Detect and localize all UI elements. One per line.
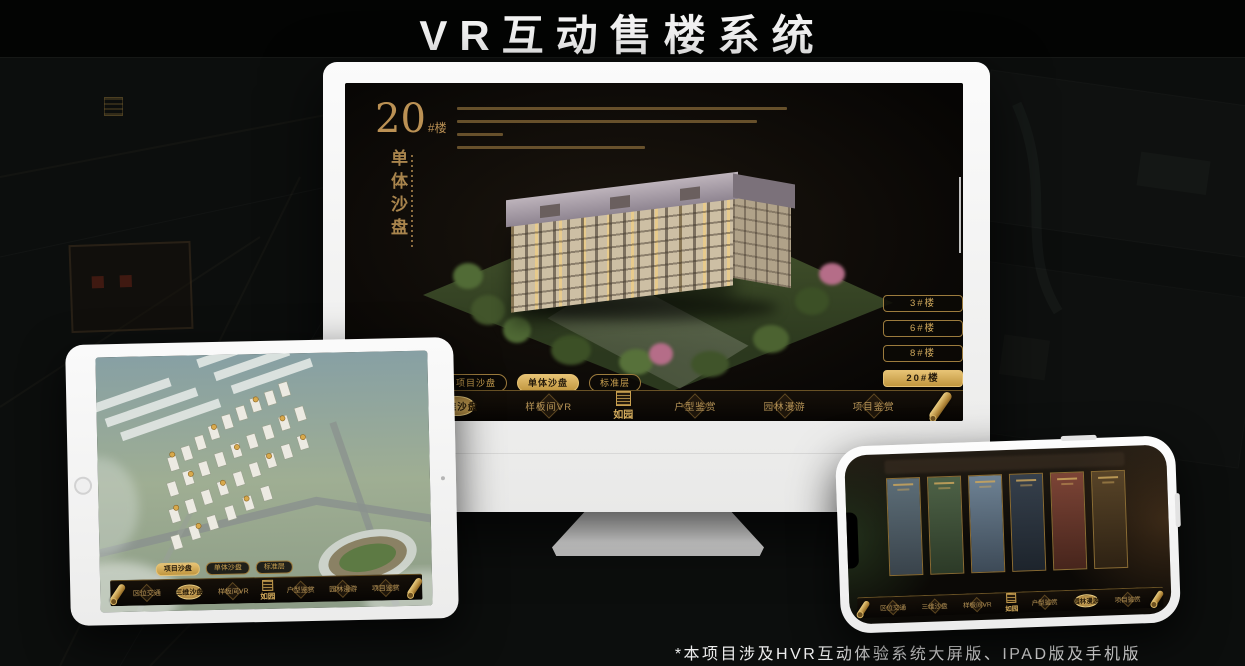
phone-device: 区位交通 三维沙盘 样板间VR 如园 户型鉴赏 园林漫游 项目鉴赏: [835, 435, 1181, 634]
flower-decoration: [819, 263, 845, 285]
tree-decoration: [753, 325, 789, 353]
tablet-camera-icon: [441, 476, 445, 480]
background-seal-decoration: [104, 97, 123, 116]
description-text-lines: [457, 107, 787, 159]
nav-item-floorplans[interactable]: 户型鉴赏: [1029, 591, 1060, 612]
phone-side-button: [1061, 435, 1097, 441]
nav-item-model-room-vr[interactable]: 样板间VR: [519, 391, 578, 421]
tree-decoration: [795, 287, 829, 315]
tree-decoration: [453, 263, 483, 289]
promo-poster: VR互动售楼系统 20#楼 单体沙盘: [0, 0, 1245, 666]
monitor-stand-base: [552, 508, 764, 556]
building-3d-model[interactable]: [423, 167, 893, 395]
nav-item-3d-sandtable[interactable]: 三维沙盘: [172, 579, 207, 605]
tablet-screen: 项目沙盘 单体沙盘 标准层 区位交通 三维沙盘 样板间VR 如园 户型鉴赏 园林…: [95, 351, 432, 613]
brand-logo: 如园: [1005, 593, 1019, 613]
tablet-home-button: [74, 476, 92, 494]
brand-seal-icon: [1006, 593, 1016, 603]
scroll-icon[interactable]: [1150, 589, 1164, 607]
brand-seal-icon: [262, 579, 273, 590]
scroll-icon[interactable]: [928, 390, 954, 421]
screen-scrollbar[interactable]: [959, 177, 961, 253]
phone-screen: 区位交通 三维沙盘 样板间VR 如园 户型鉴赏 园林漫游 项目鉴赏: [844, 444, 1172, 624]
building-button-8[interactable]: 8#楼: [883, 345, 963, 362]
nav-item-garden-roam[interactable]: 园林漫游: [1071, 590, 1102, 611]
scroll-icon[interactable]: [856, 599, 870, 617]
block-number: 20: [375, 96, 426, 142]
tab-single-sandtable[interactable]: 单体沙盘: [206, 561, 250, 575]
building-selector: 3#楼 6#楼 8#楼 20#楼: [883, 295, 963, 395]
brand-seal-icon: [616, 391, 631, 406]
scroll-icon[interactable]: [109, 583, 126, 604]
block-subtitle-en-decoration: [411, 155, 413, 247]
nav-item-location[interactable]: 区位交通: [878, 597, 909, 618]
tree-decoration: [471, 295, 505, 325]
tablet-device: 项目沙盘 单体沙盘 标准层 区位交通 三维沙盘 样板间VR 如园 户型鉴赏 园林…: [65, 337, 459, 626]
phone-side-button: [1175, 493, 1181, 527]
building-button-6[interactable]: 6#楼: [883, 320, 963, 337]
tree-decoration: [619, 349, 653, 375]
nav-item-floorplans[interactable]: 户型鉴赏: [283, 577, 318, 603]
nav-item-garden-roam[interactable]: 园林漫游: [758, 391, 812, 421]
page-title: VR互动售楼系统: [0, 2, 1245, 63]
tab-project-sandtable[interactable]: 项目沙盘: [156, 562, 200, 576]
tree-decoration: [691, 351, 729, 377]
brand-logo: 如园: [260, 579, 275, 601]
background-plaque-decoration: [69, 241, 194, 333]
block-subtitle-vertical: 单体沙盘: [385, 149, 410, 241]
gallery-panel[interactable]: [1050, 471, 1087, 570]
nav-item-location[interactable]: 区位交通: [130, 580, 165, 606]
block-heading: 20#楼: [375, 99, 447, 139]
block-suffix: #楼: [428, 121, 447, 135]
building-button-20[interactable]: 20#楼: [883, 370, 963, 387]
nav-item-project-gallery[interactable]: 项目鉴赏: [847, 391, 901, 421]
tree-decoration: [551, 335, 591, 365]
nav-item-model-room-vr[interactable]: 样板间VR: [961, 594, 994, 615]
gallery-panel[interactable]: [968, 474, 1005, 573]
nav-item-garden-roam[interactable]: 园林漫游: [326, 576, 361, 602]
scroll-panel-gallery: [886, 470, 1128, 576]
tab-standard-floor[interactable]: 标准层: [256, 560, 293, 574]
flower-decoration: [649, 343, 673, 365]
phone-notch: [846, 512, 859, 568]
footnote-text: *本项目涉及HVR互动体验系统大屏版、IPAD版及手机版: [675, 640, 1141, 664]
gallery-panel[interactable]: [1009, 473, 1046, 572]
tree-decoration: [503, 317, 531, 343]
building-button-3[interactable]: 3#楼: [883, 295, 963, 312]
nav-item-project-gallery[interactable]: 项目鉴赏: [368, 575, 403, 601]
brand-logo: 如园: [613, 391, 633, 421]
nav-item-project-gallery[interactable]: 项目鉴赏: [1112, 588, 1143, 609]
nav-item-floorplans[interactable]: 户型鉴赏: [668, 391, 722, 421]
gallery-panel[interactable]: [886, 477, 923, 576]
gallery-panel[interactable]: [1091, 470, 1128, 569]
nav-item-3d-sandtable[interactable]: 三维沙盘: [919, 595, 950, 616]
gallery-panel[interactable]: [927, 476, 964, 575]
nav-item-model-room-vr[interactable]: 样板间VR: [215, 578, 252, 604]
scroll-icon[interactable]: [406, 577, 423, 598]
